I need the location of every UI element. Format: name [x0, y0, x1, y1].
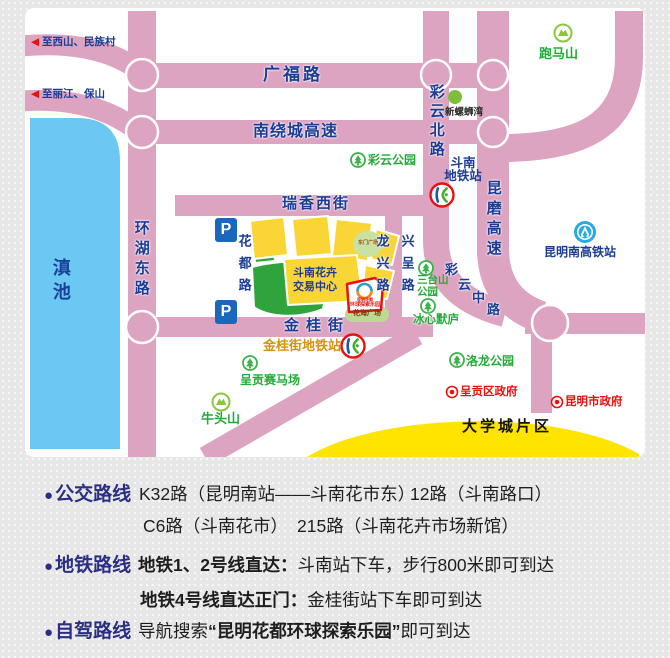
poi-label-huahai-square: 花海广场 [345, 310, 389, 317]
park-logo-text-line2: 环球探索乐园 [345, 303, 385, 308]
exit-label-lijiang: ◀ 至丽江、保山 [31, 89, 105, 100]
poi-label-saimachang: 呈贡赛马场 [240, 374, 300, 387]
junction [126, 59, 158, 91]
park-icon-santaishan [419, 261, 433, 275]
park-icon-caiyun [351, 153, 365, 167]
parking-icon: P [215, 300, 237, 324]
exit-label-xishan: ◀ 至西山、民族村 [31, 37, 116, 48]
left-arrow-icon: ◀ [31, 88, 39, 100]
park-icon-saimachang [243, 356, 257, 370]
poi-label-bingxin: 冰心默庐 [413, 314, 459, 326]
mountain-icon-niutoushan [213, 394, 230, 411]
page: { "colors": { "road_pink": "#dda4c1", "l… [0, 0, 670, 658]
road-label-caiyun-middle-char: 中 [472, 291, 485, 305]
poi-label-santaishan: 三台山公园 [417, 275, 449, 298]
drive-route-text: 导航搜索“昆明花都环球探索乐园”即可到达 [138, 618, 471, 643]
poi-label-chenggong-gov: 呈贡区政府 [460, 386, 518, 398]
park-icon-bingxin [421, 299, 435, 313]
metro-route-1: 地铁1、2号线直达：斗南站下车，步行800米即可到达 [138, 552, 554, 577]
junction [478, 60, 508, 90]
xinluosiwan-dot-icon [448, 90, 462, 104]
park-icon-luolong [450, 353, 464, 367]
metro-route-2: 地铁4号线直达正门：金桂街站下车即可到达 [140, 587, 482, 612]
bus-route-4: 215路（斗南花卉市场新馆） [297, 513, 519, 538]
junction [532, 305, 568, 341]
junction [478, 117, 508, 147]
bus-route-2: 12路（斗南路口） [410, 481, 552, 506]
gov-icon-chenggong [447, 387, 458, 398]
poi-label-luolong-park: 洛龙公园 [466, 355, 514, 368]
road-label-caiyun-middle-char: 云 [458, 278, 471, 292]
bullet-icon: ● [44, 487, 53, 504]
road-label-kunmo: 昆磨高速 [485, 180, 501, 260]
bus-route-3: C6路（斗南花市） [143, 513, 288, 538]
gov-icon-kunming [552, 397, 563, 408]
poi-label-dongmen-square: 东门广场 [353, 241, 383, 246]
metro-logo-icon-jingui [342, 335, 365, 358]
poi-label-caiyun-park: 彩云公园 [368, 154, 416, 167]
road-ramp-xishan [25, 45, 143, 74]
transit-map: 滇池 ◀ 至西山、民族村 ◀ 至丽江、保山 广福路 南绕城高速 环湖东路 彩云北… [25, 8, 645, 457]
mountain-icon-paomashan [555, 25, 572, 42]
road-label-huanhu-east: 环湖东路 [133, 220, 149, 300]
road-label-nanraocheng: 南绕城高速 [253, 124, 338, 141]
bus-route-1: K32路（昆明南站——斗南花市东） [139, 481, 415, 506]
road-label-ruixiang-west: 瑞香西街 [282, 196, 350, 212]
poi-label-jingui-metro: 金桂街地铁站 [263, 339, 341, 353]
poi-label-kunming-south-station: 昆明南高铁站 [544, 246, 616, 259]
poi-label-xinluosiwan: 新螺蛳湾 [445, 108, 483, 118]
market-label: 斗南花卉交易中心 [288, 267, 342, 294]
left-arrow-icon: ◀ [31, 36, 39, 48]
poi-label-niutoushan: 牛头山 [201, 412, 240, 426]
bus-routes-label: ●公交路线 [44, 479, 131, 506]
bullet-icon: ● [44, 558, 53, 575]
building [250, 217, 288, 259]
road-label-huadu: 花都路 [237, 234, 251, 300]
railway-station-icon [574, 221, 596, 243]
metro-routes-label: ●地铁路线 [44, 550, 131, 577]
drive-route-label: ●自驾路线 [44, 616, 131, 643]
road-label-caiyun-middle-char: 路 [487, 303, 500, 317]
dianchi-lake [30, 118, 120, 449]
poi-label-dounan-metro: 斗南地铁站 [433, 157, 493, 182]
parking-icon: P [215, 218, 237, 242]
road-label-xingcheng: 兴呈路 [400, 234, 414, 300]
road-label-guangfu: 广福路 [263, 66, 323, 84]
poi-label-kunming-gov: 昆明市政府 [565, 396, 623, 408]
metro-logo-icon-dounan [431, 184, 454, 207]
poi-label-university-town: 大学城片区 [462, 419, 552, 435]
building [292, 216, 332, 257]
map-canvas [25, 8, 645, 457]
junction [126, 311, 158, 343]
road-label-caiyun-north: 彩云北路 [428, 84, 444, 160]
junction [126, 116, 158, 148]
poi-label-paomashan: 跑马山 [539, 47, 578, 61]
road-label-jingui: 金桂街 [284, 318, 350, 334]
road-jingui [128, 317, 433, 337]
bullet-icon: ● [44, 624, 53, 641]
lake-label: 滇池 [51, 258, 70, 306]
